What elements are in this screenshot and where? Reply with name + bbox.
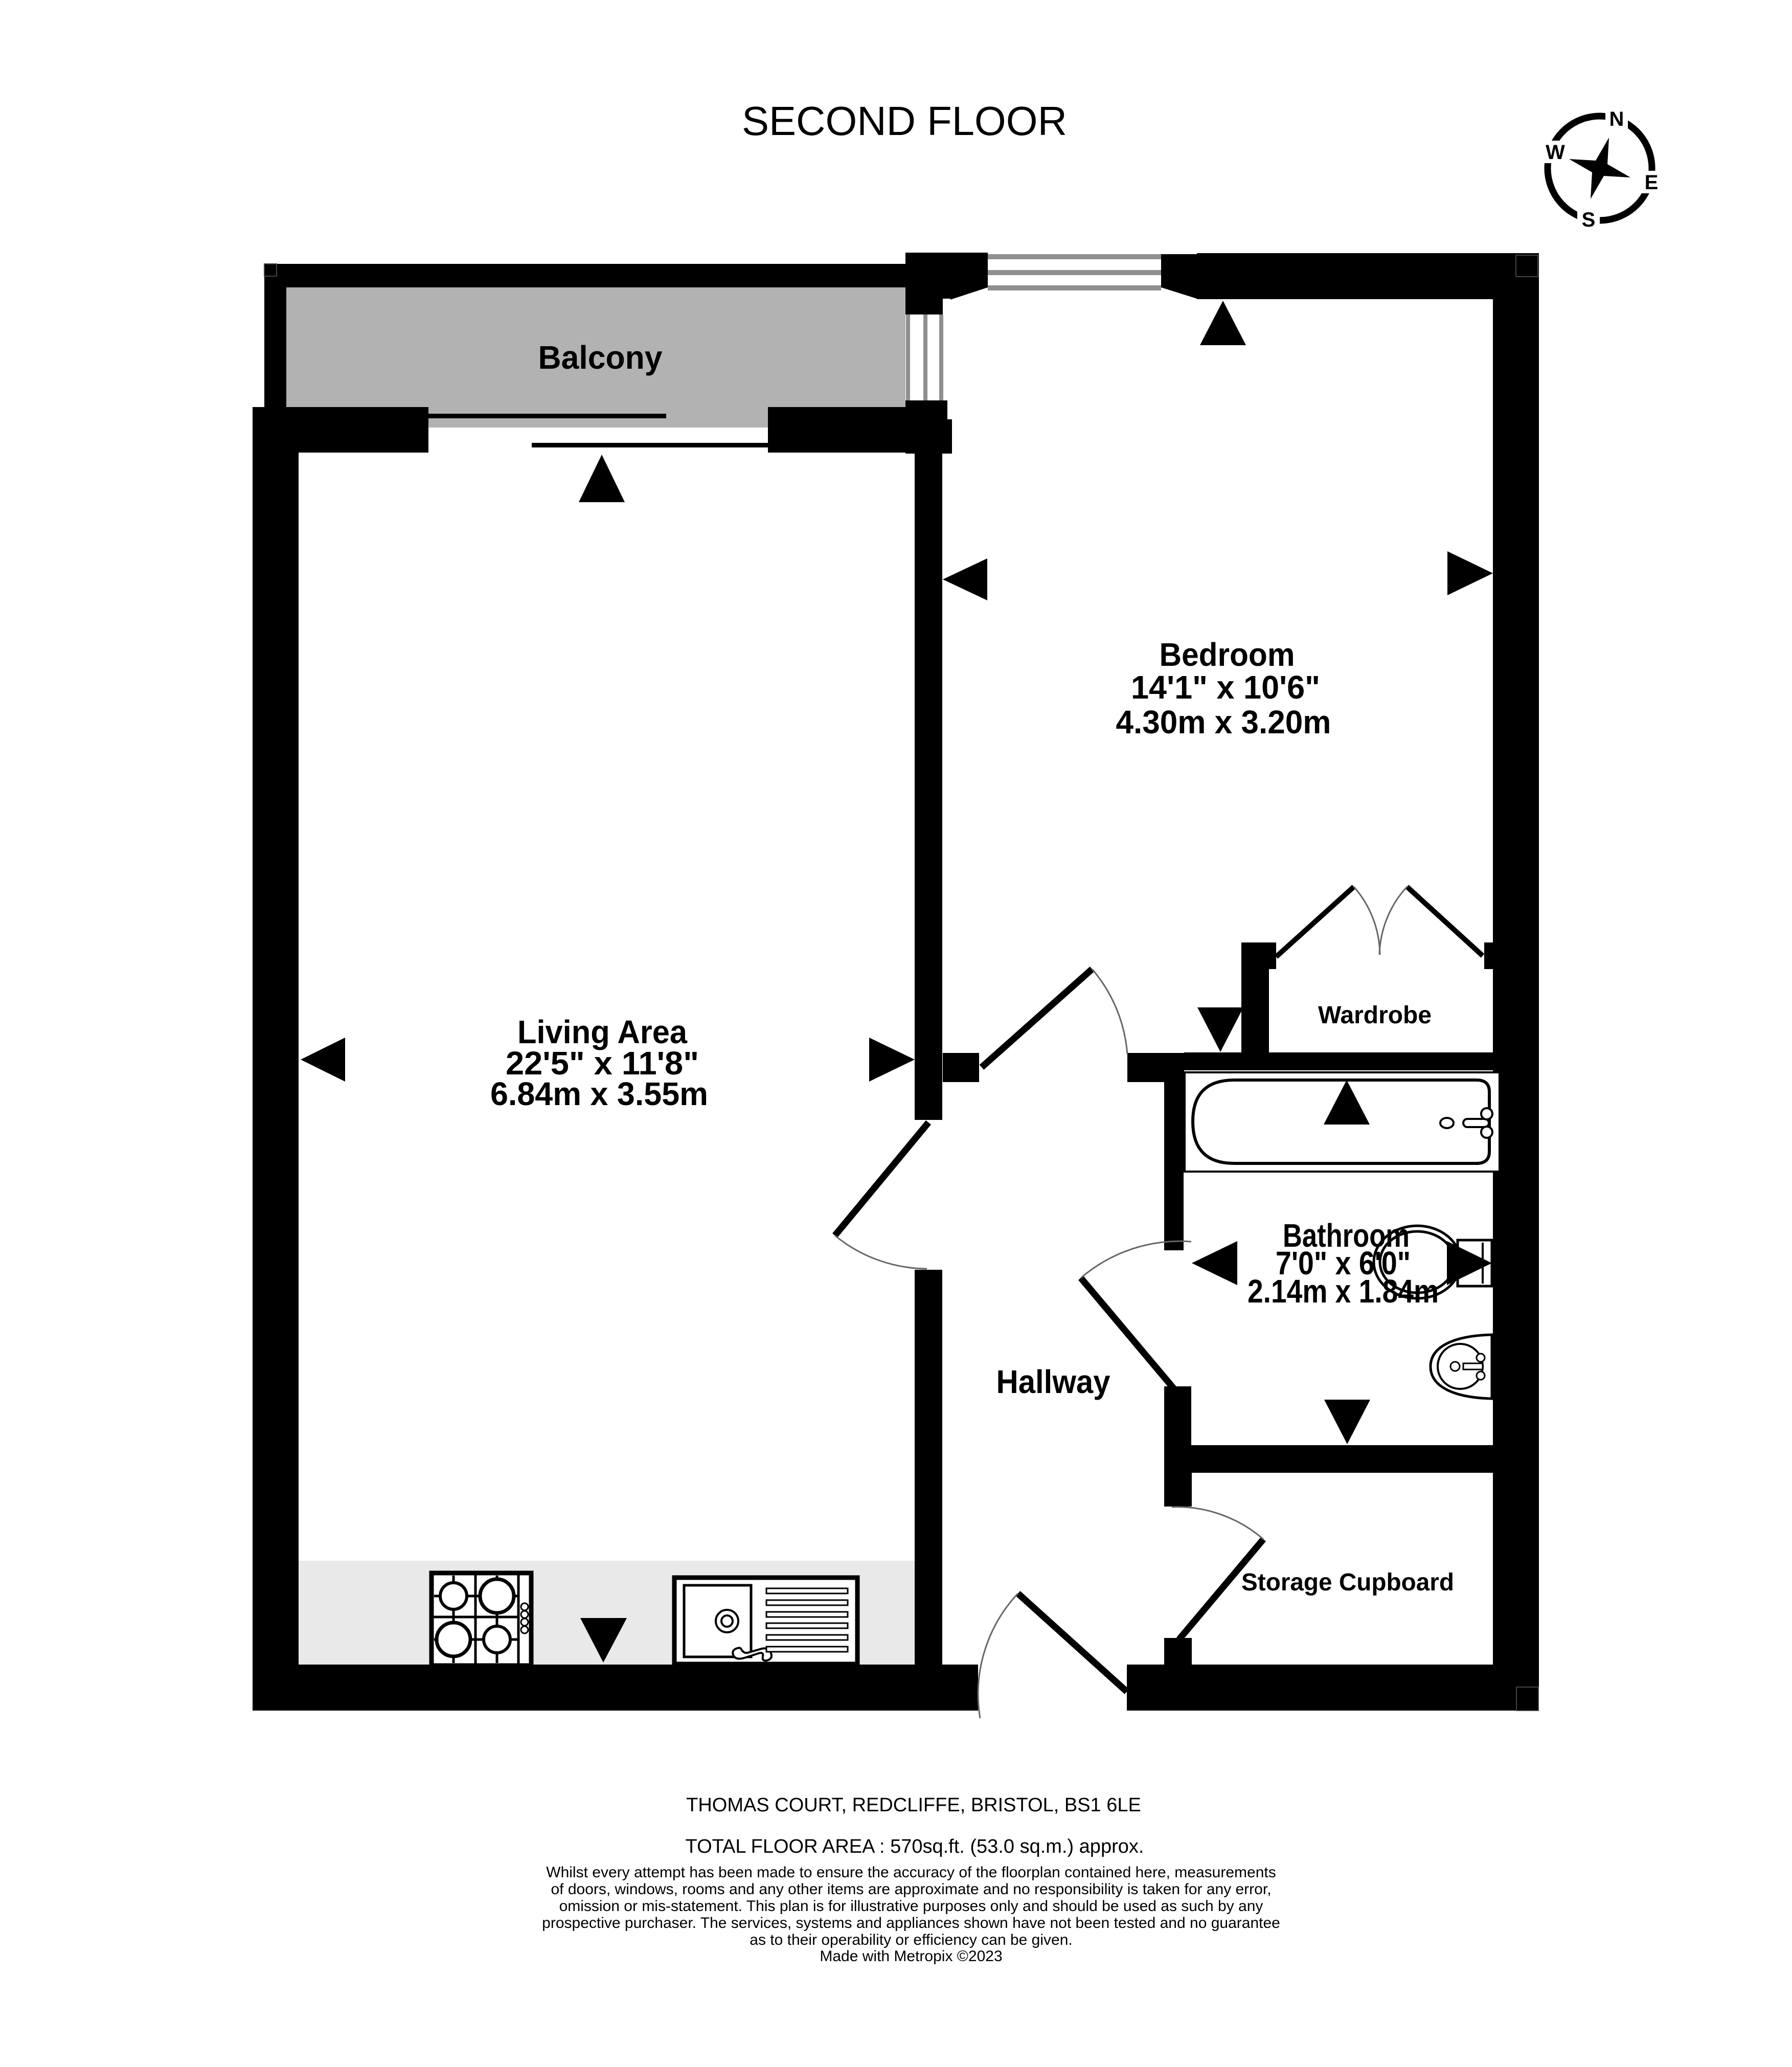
svg-text:Bedroom: Bedroom [1160,636,1295,673]
svg-text:6.84m x 3.55m: 6.84m x 3.55m [490,1075,708,1112]
svg-text:Wardrobe: Wardrobe [1318,1002,1432,1029]
svg-text:THOMAS COURT, REDCLIFFE, BRIST: THOMAS COURT, REDCLIFFE, BRISTOL, BS1 6L… [686,1794,1141,1816]
svg-text:N: N [1609,108,1624,130]
svg-text:Whilst every attempt has been: Whilst every attempt has been made to en… [546,1864,1276,1881]
svg-text:W: W [1546,141,1565,164]
svg-text:of doors, windows, rooms and a: of doors, windows, rooms and any other i… [551,1881,1271,1898]
svg-text:E: E [1645,171,1659,194]
svg-text:Balcony: Balcony [538,339,663,376]
svg-text:as to their operability or eff: as to their operability or efficiency ca… [750,1931,1072,1948]
svg-text:Hallway: Hallway [996,1363,1110,1400]
svg-text:4.30m x 3.20m: 4.30m x 3.20m [1116,704,1331,740]
svg-text:Made with Metropix ©2023: Made with Metropix ©2023 [820,1948,1002,1965]
svg-text:Storage Cupboard: Storage Cupboard [1241,1569,1454,1596]
svg-text:omission or mis-statement. Thi: omission or mis-statement. This plan is … [559,1898,1263,1915]
svg-text:S: S [1582,209,1596,231]
svg-text:prospective purchaser. The ser: prospective purchaser. The services, sys… [542,1915,1280,1931]
svg-text:2.14m x 1.84m: 2.14m x 1.84m [1247,1273,1439,1310]
svg-text:SECOND FLOOR: SECOND FLOOR [742,98,1067,144]
svg-text:14'1" x 10'6": 14'1" x 10'6" [1131,669,1320,706]
svg-text:TOTAL FLOOR AREA : 570sq.ft. (: TOTAL FLOOR AREA : 570sq.ft. (53.0 sq.m.… [686,1836,1144,1857]
